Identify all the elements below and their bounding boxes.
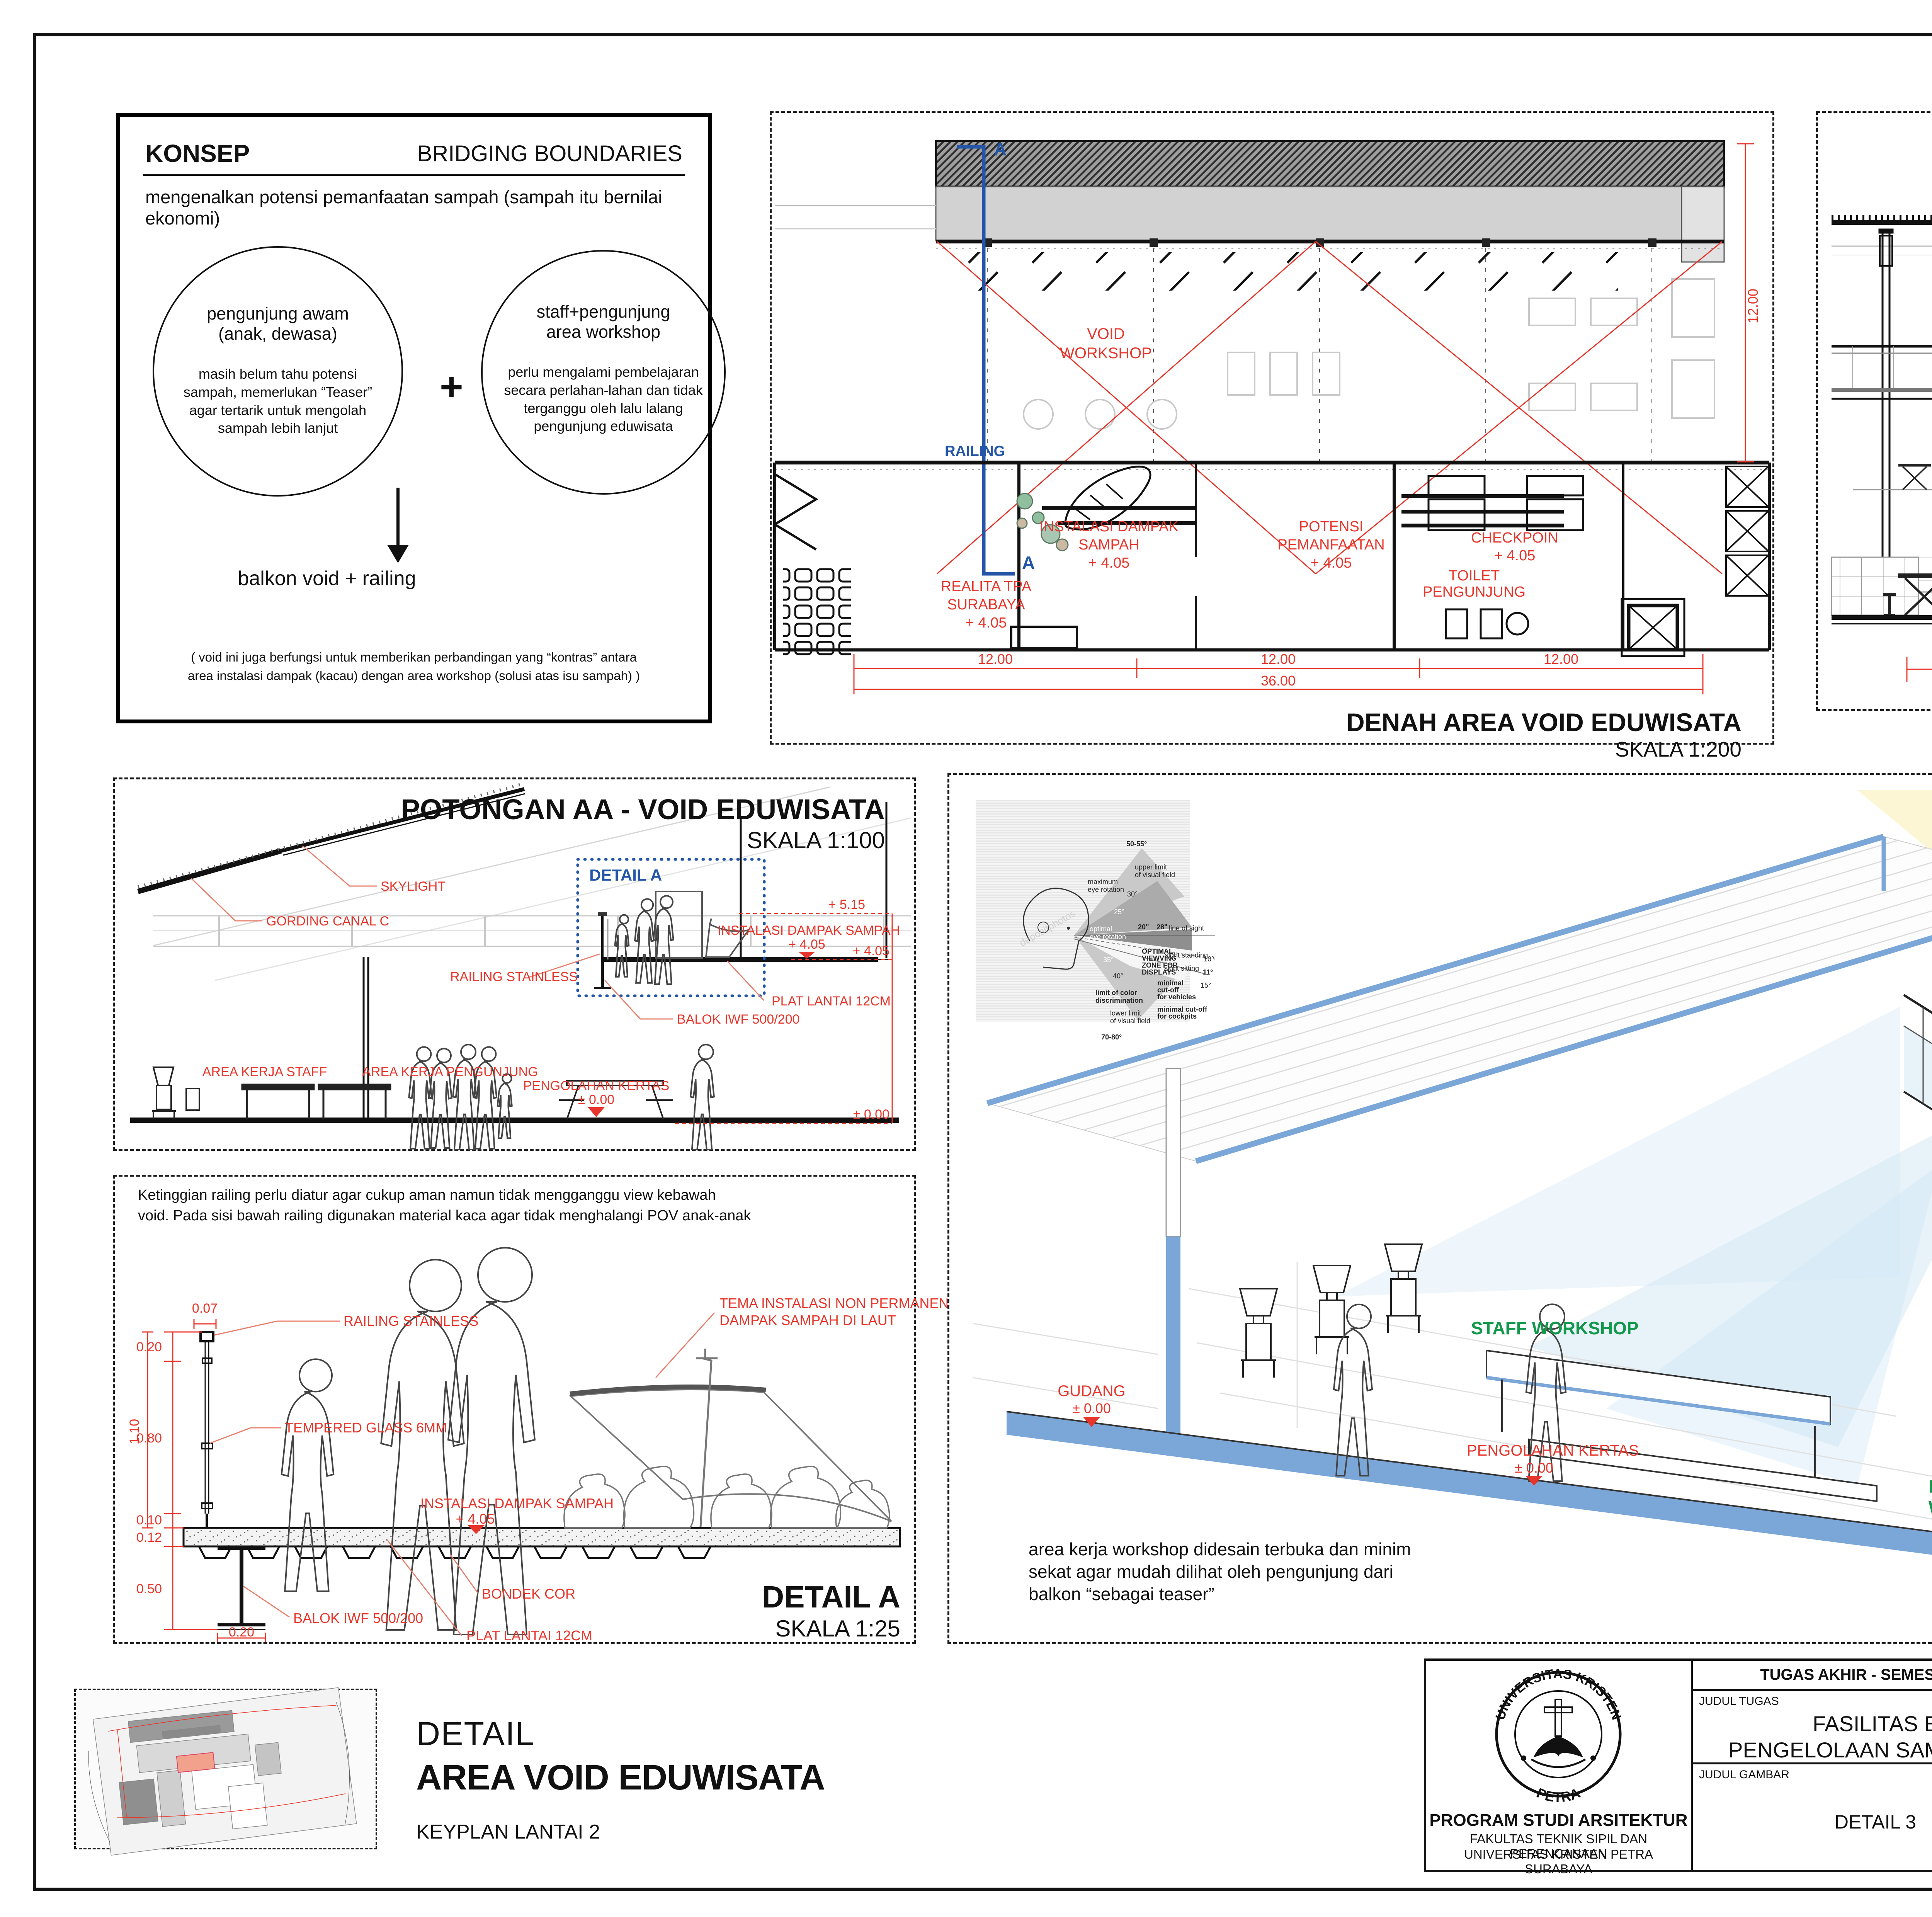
balok-label: BALOK IWF 500/200: [293, 1610, 423, 1626]
svg-text:+ 4.05: + 4.05: [1088, 555, 1130, 571]
level-515: + 5.15: [828, 897, 865, 912]
detail-title: DETAIL A: [553, 1579, 900, 1615]
potongan-title: POTONGAN AA - VOID EDUWISATA: [116, 793, 885, 826]
denah-roof: [775, 141, 1724, 262]
instalasi-label: INSTALASI DAMPAK SAMPAH: [718, 923, 900, 938]
svg-text:70-80°: 70-80°: [1101, 1033, 1122, 1041]
potongan-people-furniture: [152, 896, 748, 1150]
cell-course: TUGAS AKHIR - SEMESTER GENAP 2023/2024: [1691, 1661, 1932, 1689]
svg-text:12.00: 12.00: [1544, 651, 1578, 667]
tampak-panel: SKYLIGHT RAILING INSTALASI AREA DAMPAK +…: [1816, 111, 1932, 711]
judul-tugas-2: PENGELOLAAN SAMPAH DI SURABAYA: [1693, 1737, 1932, 1762]
svg-text:+ 4.05: + 4.05: [966, 615, 1007, 631]
cell-judul-gambar: JUDUL GAMBAR DETAIL 3: [1691, 1762, 1932, 1870]
denah-title: DENAH AREA VOID EDUWISATA: [770, 708, 1742, 737]
tema-label-2: DAMPAK SAMPAH DI LAUT: [719, 1312, 896, 1328]
svg-text:10°: 10°: [1204, 955, 1214, 963]
svg-text:35°: 35°: [1103, 956, 1114, 964]
truss-bay: [1726, 466, 1769, 596]
plat-label: PLAT LANTAI 12CM: [772, 994, 891, 1009]
svg-text:+ 4.05: + 4.05: [1494, 548, 1536, 564]
denah-panel: VOID WORKSHOP A A RAILING: [770, 111, 1774, 745]
pengolahan-label: PENGOLAHAN KERTAS: [1467, 1442, 1639, 1459]
svg-text:optimal: optimal: [1090, 925, 1112, 933]
void-label-2: WORKSHOP: [1060, 345, 1152, 362]
gording-label: GORDING CANAL C: [266, 914, 389, 929]
svg-text:+ 4.05: + 4.05: [456, 1511, 495, 1527]
svg-text:12.00: 12.00: [978, 651, 1013, 667]
svg-text:40°: 40°: [1113, 972, 1123, 980]
svg-text:0.12: 0.12: [136, 1530, 162, 1545]
railing-stainless-label: RAILING STAINLESS: [450, 970, 578, 984]
perspektif-panel: / 60 60: [947, 773, 1932, 1644]
highlight-area: [177, 1752, 215, 1772]
tampak-title: TAMPAK RAILING: [1816, 716, 1932, 745]
course-title: TUGAS AKHIR - SEMESTER GENAP 2023/2024: [1693, 1666, 1932, 1684]
svg-text:TOILET: TOILET: [1449, 568, 1500, 584]
detail-dim-labels: 0.07 0.20 0.80 1.10 0.10 0.12 0.50 0.20: [127, 1301, 254, 1640]
svg-text:POTENSI: POTENSI: [1299, 519, 1364, 535]
svg-text:30°: 30°: [1127, 890, 1138, 898]
detail-a-drawing: 0.07 0.20 0.80 1.10 0.10 0.12 0.50 0.20 …: [115, 1177, 914, 1642]
svg-text:maximum: maximum: [1088, 878, 1118, 886]
svg-text:+ 4.05: + 4.05: [788, 937, 825, 952]
detail-scale: SKALA 1:25: [553, 1615, 900, 1642]
detail-a-callout: DETAIL A: [589, 866, 662, 884]
room-labels: REALITA TPA SURABAYA + 4.05 INSTALASI DA…: [941, 519, 1558, 631]
balok-label: BALOK IWF 500/200: [677, 1012, 800, 1027]
svg-text:± 0.00: ± 0.00: [578, 1092, 614, 1107]
denah-scale: SKALA 1:200: [770, 737, 1742, 762]
lift: [1622, 599, 1684, 656]
svg-text:sekat agar mudah dilihat oleh: sekat agar mudah dilihat oleh pengunjung…: [1029, 1561, 1393, 1582]
konsep-footnote: ( void ini juga berfungsi untuk memberik…: [143, 648, 685, 685]
gudang-label: GUDANG: [1058, 1383, 1126, 1400]
stairs: [775, 474, 816, 549]
section-letter-top: A: [994, 139, 1007, 159]
konsep-panel: KONSEP BRIDGING BOUNDARIES mengenalkan p…: [116, 113, 712, 723]
pengunjung-workshop-label: PENGUNJUNG: [1929, 1476, 1932, 1497]
svg-text:+ 4.05: + 4.05: [1311, 555, 1352, 571]
svg-text:PETRA: PETRA: [1534, 1785, 1582, 1805]
area-pengunjung-label: AREA KERJA PENGUNJUNG: [362, 1065, 538, 1079]
level-000: ± 0.00: [853, 1107, 889, 1122]
svg-text:balkon “sebagai teaser”: balkon “sebagai teaser”: [1029, 1584, 1214, 1604]
svg-text:discrimination: discrimination: [1095, 997, 1143, 1004]
area-staff-label: AREA KERJA STAFF: [202, 1065, 327, 1079]
svg-text:1.10: 1.10: [127, 1419, 142, 1444]
svg-text:0.20: 0.20: [229, 1625, 254, 1640]
svg-text:line of sight: line of sight: [1169, 924, 1204, 932]
konsep-result: balkon void + railing: [143, 567, 511, 590]
detail-railing: [201, 1332, 213, 1528]
svg-text:minimal: minimal: [1157, 979, 1184, 987]
svg-text:of visual field: of visual field: [1135, 871, 1175, 879]
tempered-glass-label: TEMPERED GLASS 6MM: [285, 1420, 447, 1436]
section-letter-bottom: A: [1022, 553, 1035, 573]
svg-text:CHECKPOIN: CHECKPOIN: [1471, 530, 1558, 546]
cell-logo: UNIVERSITAS KRISTEN PETRA PROGRAM STUDI …: [1426, 1661, 1691, 1870]
svg-text:INSTALASI DAMPAK: INSTALASI DAMPAK: [1039, 519, 1179, 535]
keyplan-box: [74, 1689, 377, 1849]
perspektif-drawing: / 60 60: [949, 775, 1932, 1642]
perspektif-inset: 50-55° upper limitof visual field maximu…: [976, 800, 1215, 1041]
instalasi-label: INSTALASI DAMPAK SAMPAH: [420, 1495, 614, 1511]
svg-text:limit of color: limit of color: [1095, 989, 1137, 997]
chair-grid: [783, 565, 851, 658]
svg-text:area kerja workshop didesain t: area kerja workshop didesain terbuka dan…: [1029, 1539, 1411, 1559]
toilet-fixtures: [1446, 609, 1528, 638]
svg-text:0.10: 0.10: [136, 1513, 162, 1527]
perspektif-caption: area kerja workshop didesain terbuka dan…: [1029, 1539, 1411, 1604]
staff-machines: [152, 1067, 199, 1119]
level-405: + 4.05: [853, 944, 889, 958]
keyplan-subtitle: KEYPLAN LANTAI 2: [416, 1821, 600, 1844]
svg-text:sight sitting: sight sitting: [1164, 964, 1199, 972]
bench-tick-row: [942, 252, 1618, 291]
svg-text:0.20: 0.20: [136, 1340, 162, 1354]
denah-balcony-rooms: REALITA TPA SURABAYA + 4.05 INSTALASI DA…: [775, 457, 1769, 658]
svg-text:PENGUNJUNG: PENGUNJUNG: [1423, 584, 1526, 600]
svg-text:cut-off: cut-off: [1157, 986, 1179, 994]
detail-people: [282, 1248, 535, 1635]
svg-text:20": 20": [1138, 923, 1149, 931]
tampak-drawing: SKYLIGHT RAILING INSTALASI AREA DAMPAK +…: [1818, 113, 1932, 709]
svg-text:11°: 11°: [1203, 968, 1213, 976]
svg-text:SURABAYA: SURABAYA: [947, 597, 1025, 613]
svg-text:± 0.00: ± 0.00: [1515, 1460, 1553, 1476]
staff-workshop-label: STAFF WORKSHOP: [1471, 1318, 1639, 1338]
detail-a-panel: 0.07 0.20 0.80 1.10 0.10 0.12 0.50 0.20 …: [113, 1175, 916, 1644]
svg-text:lower limit: lower limit: [1110, 1009, 1141, 1017]
svg-text:upper limit: upper limit: [1135, 863, 1167, 871]
svg-text:0.50: 0.50: [136, 1582, 162, 1596]
svg-text:25°: 25°: [1114, 908, 1124, 916]
titleblock: UNIVERSITAS KRISTEN PETRA PROGRAM STUDI …: [1424, 1658, 1932, 1872]
tema-label-1: TEMA INSTALASI NON PERMANEN :: [719, 1295, 956, 1311]
svg-text:50-55°: 50-55°: [1126, 840, 1147, 848]
void-label-1: VOID: [1087, 325, 1125, 342]
detail-note: Ketinggian railing perlu diatur agar cuk…: [138, 1185, 751, 1226]
svg-text:± 0.00: ± 0.00: [1072, 1400, 1111, 1416]
svg-text:SAMPAH: SAMPAH: [1078, 537, 1139, 553]
svg-text:for cockpits: for cockpits: [1157, 1012, 1197, 1020]
prodi: PROGRAM STUDI ARSITEKTUR: [1426, 1811, 1691, 1830]
potongan-scale: SKALA 1:100: [116, 827, 885, 854]
pengolahan-label: PENGOLAHAN KERTAS: [523, 1078, 670, 1093]
cell-judul-tugas: JUDUL TUGAS FASILITAS EDUWISATA PENGELOL…: [1691, 1689, 1932, 1762]
svg-text:28": 28": [1156, 923, 1168, 931]
svg-text:12.00: 12.00: [1745, 289, 1761, 323]
svg-text:REALITA TPA: REALITA TPA: [941, 578, 1032, 595]
checkpoin-furniture: [1429, 476, 1583, 530]
svg-text:eye rotation: eye rotation: [1090, 933, 1126, 941]
svg-text:minimal cut-off: minimal cut-off: [1157, 1005, 1207, 1013]
svg-text:12.00: 12.00: [1261, 651, 1296, 667]
svg-text:eye rotation: eye rotation: [1088, 886, 1124, 893]
denah-drawing: VOID WORKSHOP A A RAILING: [772, 113, 1772, 743]
svg-text:of visual field: of visual field: [1110, 1017, 1150, 1025]
tampak-scale: SKALA 1:100: [1816, 746, 1932, 770]
svg-text:WORKSHOP: WORKSHOP: [1929, 1497, 1932, 1517]
konsep-arrow: [143, 132, 685, 704]
svg-text:36.00: 36.00: [1261, 673, 1296, 689]
keyplan-drawing: [76, 1690, 376, 1848]
kota: SURABAYA: [1426, 1862, 1691, 1876]
universitas: UNIVERSITAS KRISTEN PETRA: [1426, 1847, 1691, 1862]
keyplan-title: AREA VOID EDUWISATA: [416, 1757, 825, 1798]
svg-text:for vehicles: for vehicles: [1157, 993, 1196, 1001]
judul-tugas-1: FASILITAS EDUWISATA: [1693, 1711, 1932, 1736]
potongan-annotations: SKYLIGHT GORDING CANAL C RAILING STAINLE…: [191, 846, 900, 1123]
svg-text:15°: 15°: [1201, 981, 1211, 989]
railing-stainless-label: RAILING STAINLESS: [344, 1313, 478, 1329]
railing-label: RAILING: [945, 443, 1005, 459]
judul-gambar: DETAIL 3: [1693, 1811, 1932, 1833]
svg-text:sight standing: sight standing: [1165, 951, 1208, 959]
keyplan-kicker: DETAIL: [416, 1715, 535, 1753]
skylight-label: SKYLIGHT: [381, 879, 446, 894]
svg-text:0.07: 0.07: [192, 1301, 218, 1316]
svg-text:PEMANFAATAN: PEMANFAATAN: [1277, 537, 1384, 553]
